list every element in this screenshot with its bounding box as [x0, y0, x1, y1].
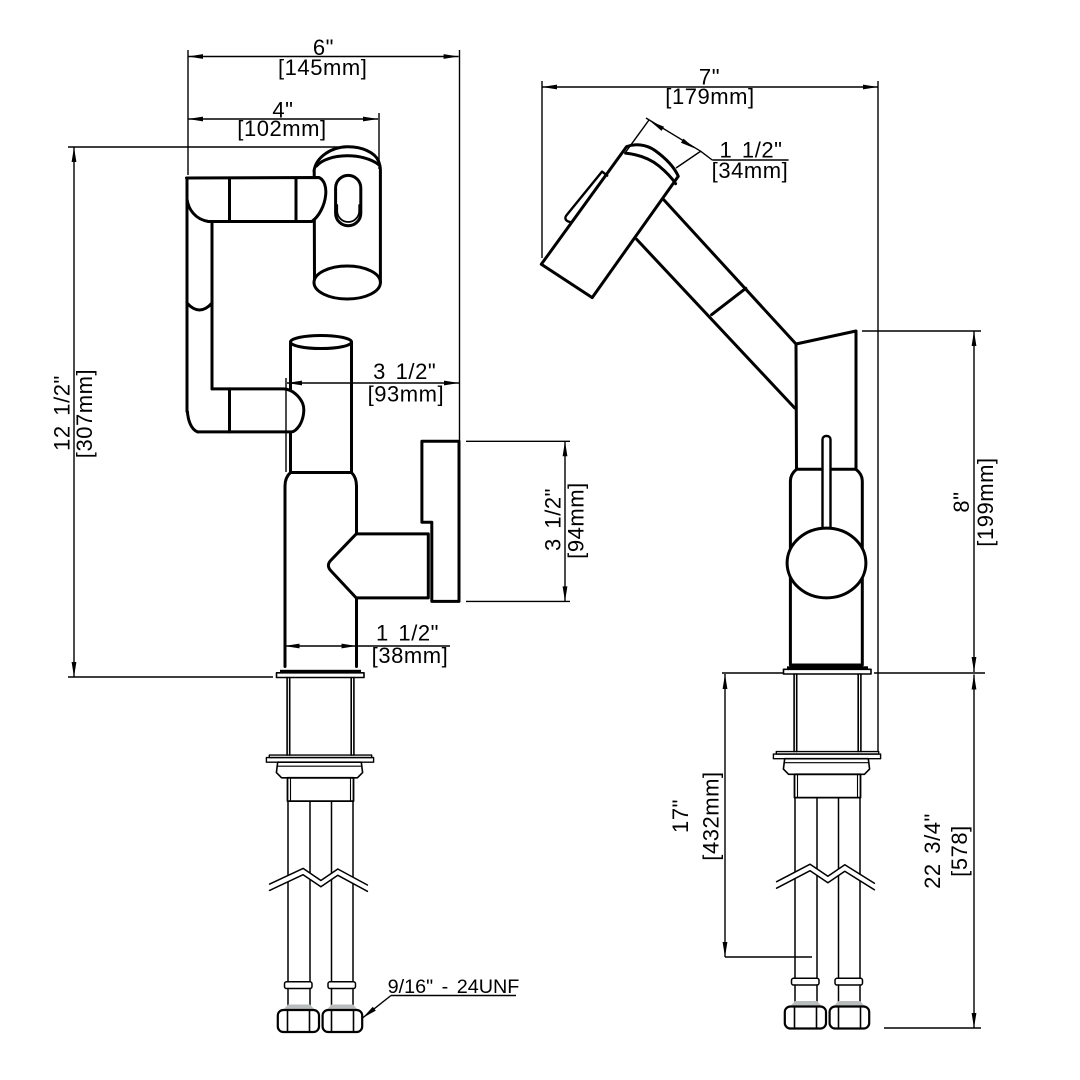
svg-text:[307mm]: [307mm]	[72, 369, 97, 458]
svg-text:17": 17"	[668, 799, 693, 833]
svg-text:[94mm]: [94mm]	[564, 482, 589, 559]
svg-text:[34mm]: [34mm]	[712, 158, 789, 183]
svg-text:3 1/2": 3 1/2"	[373, 359, 436, 384]
svg-text:12 1/2": 12 1/2"	[50, 375, 75, 451]
svg-text:1 1/2": 1 1/2"	[376, 621, 439, 646]
svg-text:3 1/2": 3 1/2"	[541, 488, 566, 551]
svg-text:8": 8"	[949, 491, 974, 512]
svg-text:[179mm]: [179mm]	[665, 84, 754, 109]
svg-text:[145mm]: [145mm]	[278, 55, 367, 80]
svg-text:9/16" - 24UNF: 9/16" - 24UNF	[388, 976, 520, 998]
svg-text:[199mm]: [199mm]	[973, 457, 998, 546]
svg-text:[432mm]: [432mm]	[699, 771, 724, 860]
svg-text:[102mm]: [102mm]	[237, 116, 326, 141]
svg-text:[38mm]: [38mm]	[372, 643, 449, 668]
svg-text:[578]: [578]	[947, 825, 972, 877]
svg-text:[93mm]: [93mm]	[368, 382, 445, 407]
svg-text:22 3/4": 22 3/4"	[920, 813, 945, 889]
